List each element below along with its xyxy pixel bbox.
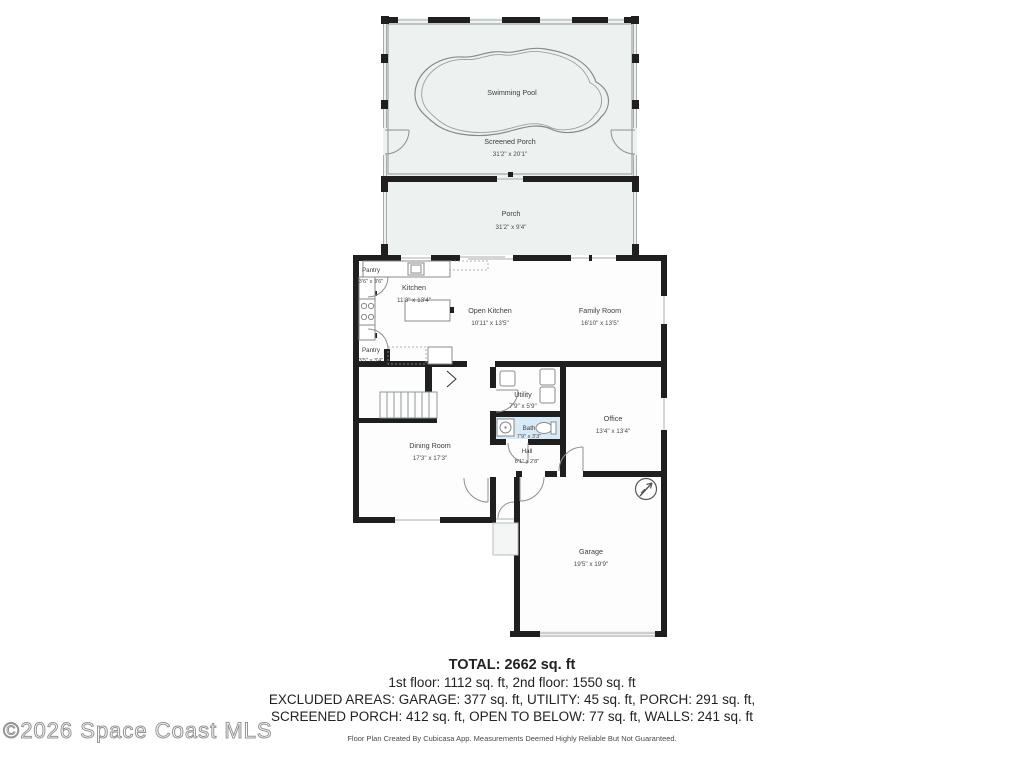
window: [571, 255, 616, 261]
room-label-pantry-1: Pantry: [362, 267, 381, 274]
floor-areas-text: 1st floor: 1112 sq. ft, 2nd floor: 1550 …: [0, 674, 1024, 691]
dryer: [540, 369, 555, 385]
room-label-hall: Hall: [522, 448, 533, 455]
porch-floor: [383, 182, 637, 255]
room-dims-utility: 7'9" x 5'9": [509, 403, 537, 410]
front-walkway: [493, 523, 518, 555]
stove: [359, 299, 375, 325]
room-dims-porch: 31'2" x 9'4": [495, 224, 526, 231]
refrigerator: [428, 347, 452, 364]
floor-plan-drawing: Swimming Pool Screened Porch 31'2" x 20'…: [0, 0, 1024, 768]
window: [661, 296, 667, 324]
room-label-pantry-2: Pantry: [362, 347, 381, 354]
room-label-porch: Porch: [502, 209, 521, 218]
window: [401, 255, 431, 261]
room-label-utility: Utility: [514, 390, 532, 399]
room-dims-hall: 8'1" x 2'8": [515, 459, 539, 465]
room-dims-open-kitchen: 10'11" x 13'5": [471, 320, 509, 327]
room-dims-pantry-1: 3'6" x 3'6": [359, 279, 383, 285]
room-dims-bath: 7'9" x 3'3": [517, 434, 541, 440]
toilet: [536, 422, 556, 434]
room-dims-family-room: 16'10" x 13'5": [581, 320, 619, 327]
floor-plan-page: Swimming Pool Screened Porch 31'2" x 20'…: [0, 0, 1024, 768]
room-label-screened-porch: Screened Porch: [484, 137, 536, 146]
sliding-door-opening: [460, 255, 513, 261]
room-dims-kitchen: 11'3" x 13'4": [397, 297, 431, 304]
room-label-swimming-pool: Swimming Pool: [487, 88, 537, 97]
total-area-text: TOTAL: 2662 sq. ft: [0, 656, 1024, 674]
room-label-dining-room: Dining Room: [409, 441, 451, 450]
bath-sink: [497, 419, 514, 436]
garage-door: [540, 631, 655, 637]
room-label-bath: Bath: [523, 425, 536, 432]
compass-icon: [636, 479, 657, 500]
mls-watermark: ©2026 Space Coast MLS: [3, 718, 273, 744]
room-dims-garage: 19'5" x 19'9": [574, 561, 609, 568]
room-dims-screened-porch: 31'2" x 20'1": [493, 151, 528, 158]
window: [661, 398, 667, 430]
room-dims-dining-room: 17'3" x 17'3": [413, 455, 448, 462]
porch-area: [381, 182, 639, 255]
room-dims-office: 13'4" x 13'4": [596, 428, 631, 435]
room-label-office: Office: [604, 414, 623, 423]
window: [395, 517, 440, 523]
room-label-garage: Garage: [579, 547, 603, 556]
room-label-kitchen: Kitchen: [402, 283, 426, 292]
excluded-areas-text-1: EXCLUDED AREAS: GARAGE: 377 sq. ft, UTIL…: [0, 691, 1024, 708]
washer: [500, 371, 515, 386]
room-label-family-room: Family Room: [579, 306, 621, 315]
room-dims-pantry-2: 3'5" x 3'4": [359, 358, 383, 364]
room-label-open-kitchen: Open Kitchen: [468, 306, 512, 315]
